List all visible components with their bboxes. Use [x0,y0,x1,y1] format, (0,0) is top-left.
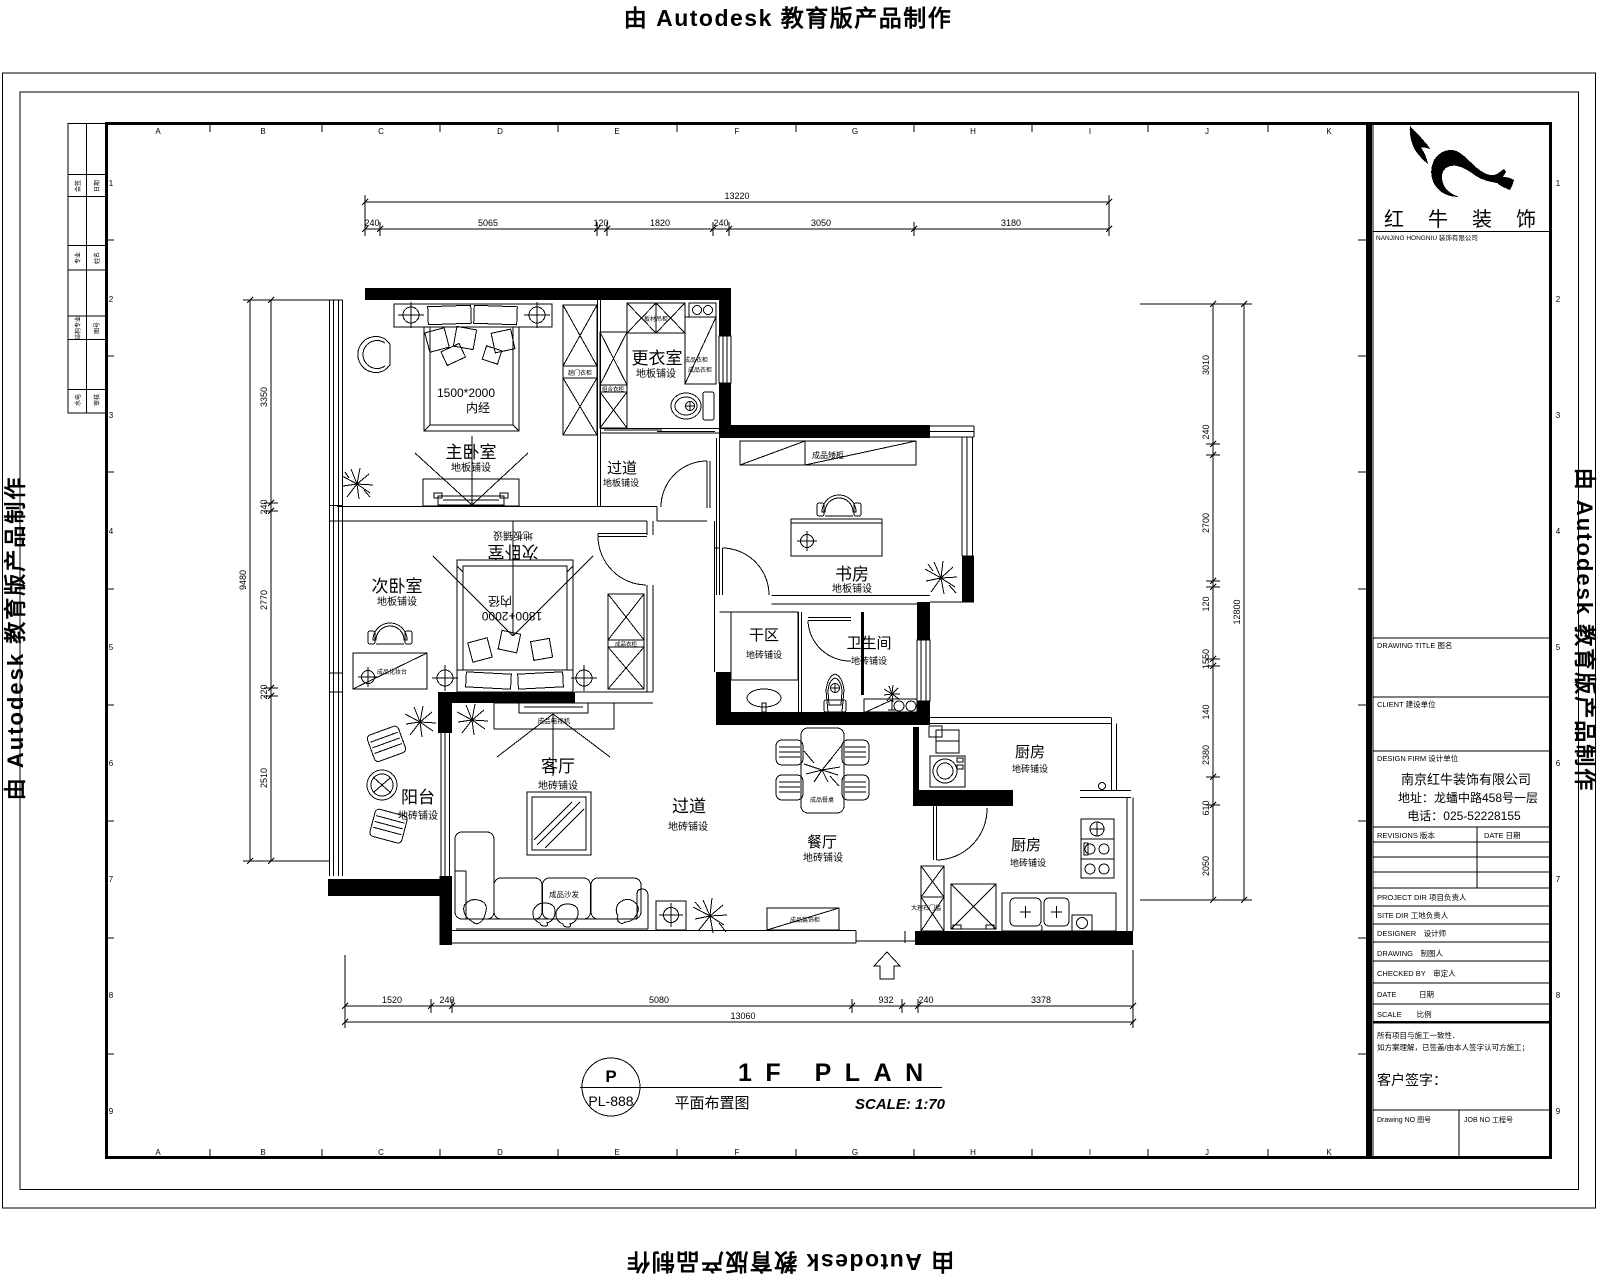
svg-text:成品沙发: 成品沙发 [549,889,579,899]
svg-text:2: 2 [1556,295,1561,304]
svg-text:610: 610 [1201,800,1211,815]
svg-text:5080: 5080 [649,995,669,1005]
svg-text:F: F [735,1148,740,1157]
svg-text:8: 8 [1556,991,1561,1000]
svg-text:电话：025-52228155: 电话：025-52228155 [1407,809,1521,823]
svg-text:PL-888: PL-888 [588,1093,633,1109]
svg-text:厨房: 厨房 [1011,837,1041,854]
svg-text:成品矮柜: 成品矮柜 [812,450,844,460]
svg-text:13060: 13060 [730,1011,755,1021]
svg-text:餐厅: 餐厅 [807,834,837,851]
svg-text:PROJECT DIR 项目负责人: PROJECT DIR 项目负责人 [1377,892,1467,902]
svg-text:牛: 牛 [1428,208,1448,231]
svg-text:地砖铺设: 地砖铺设 [803,851,843,864]
svg-text:120: 120 [593,218,608,228]
svg-text:I: I [1089,127,1091,136]
svg-text:H: H [970,127,976,136]
svg-text:A: A [155,1148,161,1157]
svg-text:更衣室: 更衣室 [632,349,683,368]
svg-text:8: 8 [109,991,114,1000]
svg-text:B: B [260,127,265,136]
svg-text:7: 7 [109,875,114,884]
svg-text:REVISIONS 版本: REVISIONS 版本 [1377,830,1435,840]
svg-text:6: 6 [1556,759,1561,768]
svg-text:成品衣柜: 成品衣柜 [615,640,638,648]
svg-text:9: 9 [1556,1107,1561,1116]
svg-text:如方案理解，已签盖/由本人签字认可方施工；: 如方案理解，已签盖/由本人签字认可方施工； [1377,1042,1529,1052]
svg-text:12800: 12800 [1232,599,1242,624]
svg-text:地砖铺设: 地砖铺设 [538,779,578,792]
svg-text:C: C [378,127,384,136]
svg-text:地砖铺设: 地砖铺设 [1010,857,1046,868]
svg-text:CLIENT 建设单位: CLIENT 建设单位 [1377,699,1436,709]
svg-text:240: 240 [713,218,728,228]
svg-text:组合衣柜: 组合衣柜 [602,385,625,393]
svg-text:240: 240 [439,995,454,1005]
svg-text:3: 3 [1556,411,1561,420]
svg-text:2: 2 [109,295,114,304]
svg-text:F: F [735,127,740,136]
svg-text:E: E [614,1148,619,1157]
svg-text:DRAWING TITLE 图名: DRAWING TITLE 图名 [1377,640,1452,650]
svg-text:书房: 书房 [835,565,869,584]
svg-text:J: J [1205,127,1209,136]
svg-text:卫生间: 卫生间 [846,635,891,652]
svg-text:地砖铺设: 地砖铺设 [746,649,782,660]
svg-text:5065: 5065 [478,218,498,228]
svg-text:地砖铺设: 地砖铺设 [851,655,887,666]
svg-text:主卧室: 主卧室 [446,443,497,462]
svg-text:DATE 日期: DATE 日期 [1484,831,1521,840]
svg-text:1: 1 [109,179,114,188]
svg-text:9: 9 [109,1107,114,1116]
svg-text:DATE 日期: DATE 日期 [1377,990,1434,999]
svg-text:4: 4 [1556,527,1561,536]
svg-text:客户签字：: 客户签字： [1377,1072,1447,1088]
svg-text:成品装饰柜: 成品装饰柜 [790,916,820,924]
svg-text:240: 240 [918,995,933,1005]
svg-text:J: J [1205,1148,1209,1157]
svg-text:K: K [1326,127,1332,136]
svg-text:地砖铺设: 地砖铺设 [1012,763,1048,774]
svg-text:过道: 过道 [607,460,637,477]
svg-text:240: 240 [1201,424,1211,439]
svg-text:4: 4 [109,527,114,536]
svg-text:板材吊柜: 板材吊柜 [644,315,668,323]
svg-text:E: E [614,127,619,136]
svg-text:220: 220 [259,684,269,699]
svg-text:趟门衣柜: 趟门衣柜 [568,369,592,377]
svg-text:7: 7 [1556,875,1561,884]
svg-text:南京红牛装饰有限公司: 南京红牛装饰有限公司 [1401,772,1531,787]
svg-text:9480: 9480 [238,570,248,590]
svg-text:3: 3 [109,411,114,420]
svg-text:140: 140 [1201,704,1211,719]
svg-text:次卧室: 次卧室 [372,577,423,596]
svg-text:厨房: 厨房 [1015,744,1045,761]
svg-text:SCALE 比例: SCALE 比例 [1377,1009,1432,1019]
svg-text:1500*2000: 1500*2000 [437,386,495,400]
svg-text:A: A [155,127,161,136]
svg-text:5: 5 [1556,643,1561,652]
svg-text:G: G [852,127,858,136]
svg-text:1520: 1520 [382,995,402,1005]
svg-text:由 Autodesk 教育版产品制作: 由 Autodesk 教育版产品制作 [626,1249,955,1275]
svg-text:3378: 3378 [1031,995,1051,1005]
svg-text:由 Autodesk 教育版产品制作: 由 Autodesk 教育版产品制作 [1572,468,1597,792]
svg-text:P: P [605,1067,616,1086]
svg-text:结构专业: 结构专业 [74,316,82,340]
svg-text:NANJING HONGNIU 装饰有限公司: NANJING HONGNIU 装饰有限公司 [1376,233,1478,242]
svg-text:地板铺设: 地板铺设 [377,595,417,608]
svg-text:2380: 2380 [1201,745,1211,765]
svg-text:SITE DIR 工地负责人: SITE DIR 工地负责人 [1377,910,1449,920]
svg-text:地板铺设: 地板铺设 [832,582,872,595]
svg-text:1820: 1820 [650,218,670,228]
svg-text:阳台: 阳台 [401,788,435,807]
svg-text:D: D [497,127,503,136]
svg-text:G: G [852,1148,858,1157]
svg-text:DRAWING 制图人: DRAWING 制图人 [1377,948,1443,958]
svg-text:姓名: 姓名 [93,252,101,264]
svg-text:1: 1 [1556,179,1561,188]
svg-text:2770: 2770 [259,590,269,610]
svg-text:B: B [260,1148,265,1157]
svg-text:JOB NO 工程号: JOB NO 工程号 [1464,1115,1513,1124]
svg-text:日期: 日期 [93,180,101,192]
svg-text:由 Autodesk 教育版产品制作: 由 Autodesk 教育版产品制作 [3,476,28,800]
svg-text:DESIGN FIRM 设计单位: DESIGN FIRM 设计单位 [1377,753,1459,763]
svg-text:932: 932 [878,995,893,1005]
svg-text:地板铺设: 地板铺设 [451,461,491,474]
svg-text:K: K [1326,1148,1332,1157]
svg-text:3010: 3010 [1201,355,1211,375]
svg-text:红: 红 [1384,208,1404,231]
svg-text:3050: 3050 [811,218,831,228]
svg-text:1F PLAN: 1F PLAN [738,1059,937,1087]
svg-text:装: 装 [1472,208,1492,231]
svg-text:C: C [378,1148,384,1157]
svg-text:1550: 1550 [1201,649,1211,669]
svg-text:内径: 内径 [488,594,512,608]
svg-text:过道: 过道 [672,797,706,816]
svg-text:审核: 审核 [93,394,101,406]
svg-text:D: D [497,1148,503,1157]
svg-text:H: H [970,1148,976,1157]
svg-text:I: I [1089,1148,1091,1157]
svg-text:成品化妆台: 成品化妆台 [377,668,407,676]
svg-text:240: 240 [259,499,269,514]
svg-text:干区: 干区 [749,627,779,644]
svg-text:由 Autodesk 教育版产品制作: 由 Autodesk 教育版产品制作 [624,5,953,31]
svg-text:地砖铺设: 地砖铺设 [668,820,708,833]
svg-text:2700: 2700 [1201,513,1211,533]
svg-text:13220: 13220 [724,191,749,201]
svg-text:水电: 水电 [74,394,82,406]
svg-text:2050: 2050 [1201,856,1211,876]
svg-text:内经: 内经 [466,401,490,415]
svg-text:专业: 专业 [74,252,82,264]
svg-text:3180: 3180 [1001,218,1021,228]
svg-text:地板铺设: 地板铺设 [603,477,639,488]
svg-text:成品衣柜: 成品衣柜 [684,356,708,364]
svg-text:Drawing NO 图号: Drawing NO 图号 [1377,1116,1431,1124]
svg-text:SCALE: 1:70: SCALE: 1:70 [855,1096,946,1113]
svg-text:饰: 饰 [1516,208,1536,231]
svg-text:客厅: 客厅 [541,757,575,776]
svg-text:2510: 2510 [259,768,269,788]
svg-text:成品衣柜: 成品衣柜 [688,366,712,374]
svg-text:地址：龙蟠中路458号一层: 地址：龙蟠中路458号一层 [1398,790,1538,805]
svg-text:图号: 图号 [94,322,101,334]
svg-text:6: 6 [109,759,114,768]
svg-text:DESIGNER 设计师: DESIGNER 设计师 [1377,928,1447,938]
svg-text:所有项目与施工一致性．: 所有项目与施工一致性． [1377,1030,1460,1040]
svg-text:会签: 会签 [74,180,82,192]
svg-text:5: 5 [109,643,114,652]
svg-text:120: 120 [1201,596,1211,611]
svg-text:地板铺设: 地板铺设 [636,367,676,380]
svg-text:成品餐桌: 成品餐桌 [810,796,834,804]
svg-text:大理石门槛: 大理石门槛 [911,904,941,912]
svg-text:3350: 3350 [259,387,269,407]
svg-text:CHECKED BY 审定人: CHECKED BY 审定人 [1377,968,1456,978]
svg-text:240: 240 [364,218,379,228]
svg-text:平面布置图: 平面布置图 [674,1095,749,1112]
